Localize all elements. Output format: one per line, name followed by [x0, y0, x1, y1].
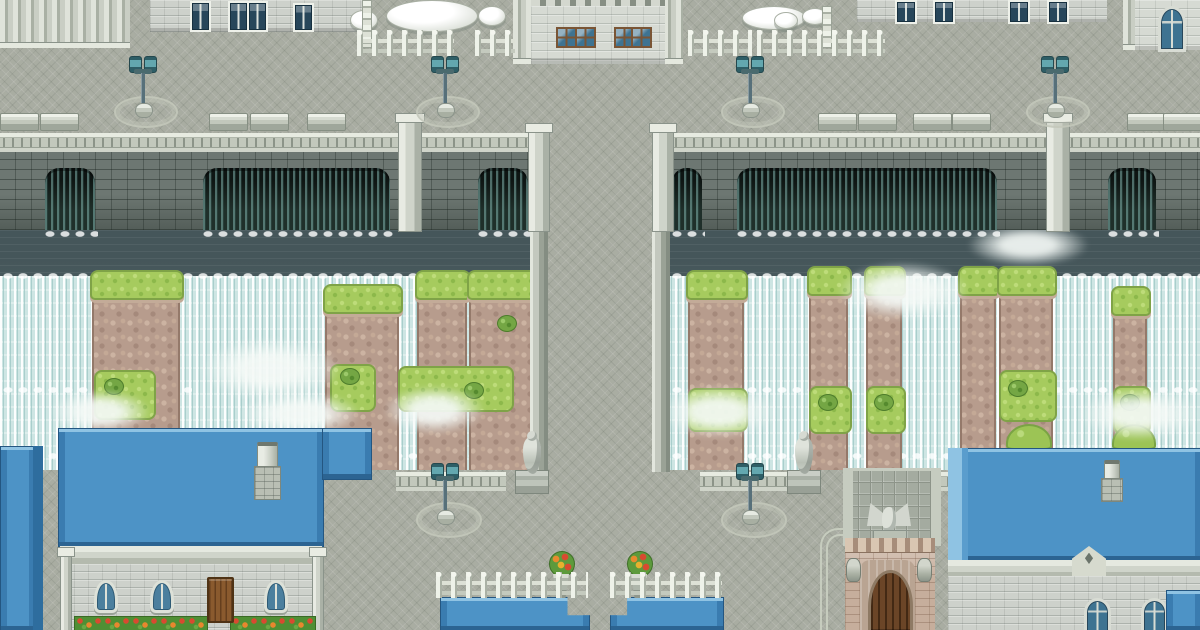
window-dark-blue [293, 3, 314, 32]
statue-head [527, 431, 537, 441]
window-dark-blue [933, 0, 955, 24]
gatehouse-pilaster-right [663, 0, 683, 64]
cliff-grass-cap [90, 270, 184, 300]
window-brown-frame [575, 27, 596, 48]
cliff-grass-cap [686, 270, 748, 300]
waterfall-mist [660, 386, 776, 438]
dam-arch-waterfall [478, 168, 528, 230]
stone-bench [1163, 113, 1200, 131]
chimney [252, 442, 282, 500]
marble-table [386, 0, 478, 32]
bush [340, 368, 360, 385]
lamp-base [1047, 103, 1065, 118]
dam-arch-waterfall [737, 168, 997, 230]
window-gothic [1141, 598, 1168, 630]
window-dark-blue [1008, 0, 1030, 24]
bush [1008, 380, 1028, 397]
waterfall-mist [200, 338, 340, 400]
mermaid-statue [512, 424, 552, 494]
stone-bench [250, 113, 289, 131]
path-side-wall-right [652, 230, 670, 472]
gate-urn [917, 558, 932, 582]
lamp-base [437, 510, 455, 525]
cliff-grass-cap [415, 270, 471, 300]
picket-fence [475, 30, 515, 56]
gate-battlements [845, 538, 935, 553]
window-arched [94, 580, 118, 613]
corner-roof-piece [1166, 590, 1200, 630]
bridge-pillar [528, 124, 550, 232]
balustrade-railing [0, 133, 528, 152]
building-far-top-right-quoins [1123, 0, 1135, 50]
marble-stool [478, 6, 506, 26]
house-door[interactable] [207, 577, 234, 623]
bush [874, 394, 894, 411]
left-house-annex-roof [322, 428, 372, 480]
stone-bench [952, 113, 991, 131]
window-arched [264, 580, 288, 613]
stone-bench [858, 113, 897, 131]
bridge-pillar [1046, 114, 1070, 232]
dam-arch-waterfall [45, 168, 95, 230]
flower-box [74, 616, 208, 630]
cliff-grass-cap [997, 266, 1057, 296]
bush [818, 394, 838, 411]
lamp-base [437, 103, 455, 118]
bush [497, 315, 517, 332]
street-lamp [430, 463, 460, 525]
gargoyle-body [882, 507, 896, 532]
chimney-base [1101, 478, 1123, 502]
street-lamp [735, 56, 765, 118]
roof-strip-far-left [0, 446, 36, 630]
lamp-pole [141, 73, 145, 106]
window-arched [150, 580, 174, 613]
window-dark-blue [895, 0, 917, 24]
street-lamp [735, 463, 765, 525]
lamp-pole [748, 480, 752, 513]
stone-bench [40, 113, 79, 131]
waterfall-mist [968, 224, 1088, 266]
lamp-pole [748, 73, 752, 106]
lamp-pole [443, 480, 447, 513]
statue-figure [523, 436, 541, 474]
cliff-grass-cap [323, 284, 403, 314]
street-lamp [430, 56, 460, 118]
cliff-grass-cap [1111, 286, 1151, 316]
window-dark-blue [247, 1, 268, 32]
left-house-corner-left [60, 548, 72, 630]
bottom-roof-left [440, 597, 590, 630]
picket-fence [436, 572, 588, 598]
statue-head [799, 431, 809, 441]
window-dark-blue [1047, 0, 1069, 24]
lamp-base [742, 103, 760, 118]
picket-fence [757, 30, 885, 56]
marble-stool [774, 12, 798, 29]
left-house-roof [58, 428, 324, 548]
stone-bench [1127, 113, 1166, 131]
gatehouse-pilaster-left [513, 0, 533, 64]
gate-urn [846, 558, 861, 582]
mermaid-statue [784, 424, 824, 494]
right-house-roof [948, 448, 1200, 562]
roof-strip-edge [33, 446, 43, 630]
waterfall-mist [838, 262, 968, 320]
window-gothic [1158, 6, 1186, 52]
dam-arch-waterfall [203, 168, 390, 230]
lamp-base [135, 103, 153, 118]
waterfall-mist [1078, 388, 1200, 440]
right-house-gable-edge [948, 448, 968, 560]
stone-bench [0, 113, 39, 131]
window-brown-frame [556, 27, 577, 48]
flower-box [230, 616, 316, 630]
town-map [0, 0, 1200, 630]
picket-fence [357, 30, 454, 56]
lamp-pole [1053, 73, 1057, 106]
stone-bench [913, 113, 952, 131]
street-lamp [1040, 56, 1070, 118]
bridge-pillar [398, 114, 422, 232]
balustrade-railing [672, 133, 1200, 152]
stone-bench [818, 113, 857, 131]
bridge-pillar [652, 124, 674, 232]
street-lamp [128, 56, 158, 118]
cliff-grass-ledge [999, 370, 1057, 422]
bottom-roof-right [610, 597, 724, 630]
cliff-grass-cap [467, 270, 539, 300]
dam-arch-waterfall [672, 168, 702, 230]
window-brown-frame [631, 27, 652, 48]
window-dark-blue [190, 1, 211, 32]
window-dark-blue [228, 1, 249, 32]
stone-bench [209, 113, 248, 131]
building-ornate-top-left [0, 0, 130, 48]
waterfall-mist [384, 386, 484, 434]
cliff-rock-column [688, 286, 744, 470]
lamp-pole [443, 73, 447, 106]
window-gothic [1084, 598, 1111, 630]
lamp-base [742, 510, 760, 525]
statue-figure [795, 436, 813, 474]
picket-fence [610, 572, 722, 598]
gargoyle-statue [867, 500, 911, 540]
left-house-cornice [60, 546, 322, 566]
chimney-base [254, 466, 281, 500]
picket-fence [688, 30, 752, 56]
stone-bench [307, 113, 346, 131]
chimney [1100, 460, 1124, 502]
dam-arch-waterfall [1108, 168, 1156, 230]
